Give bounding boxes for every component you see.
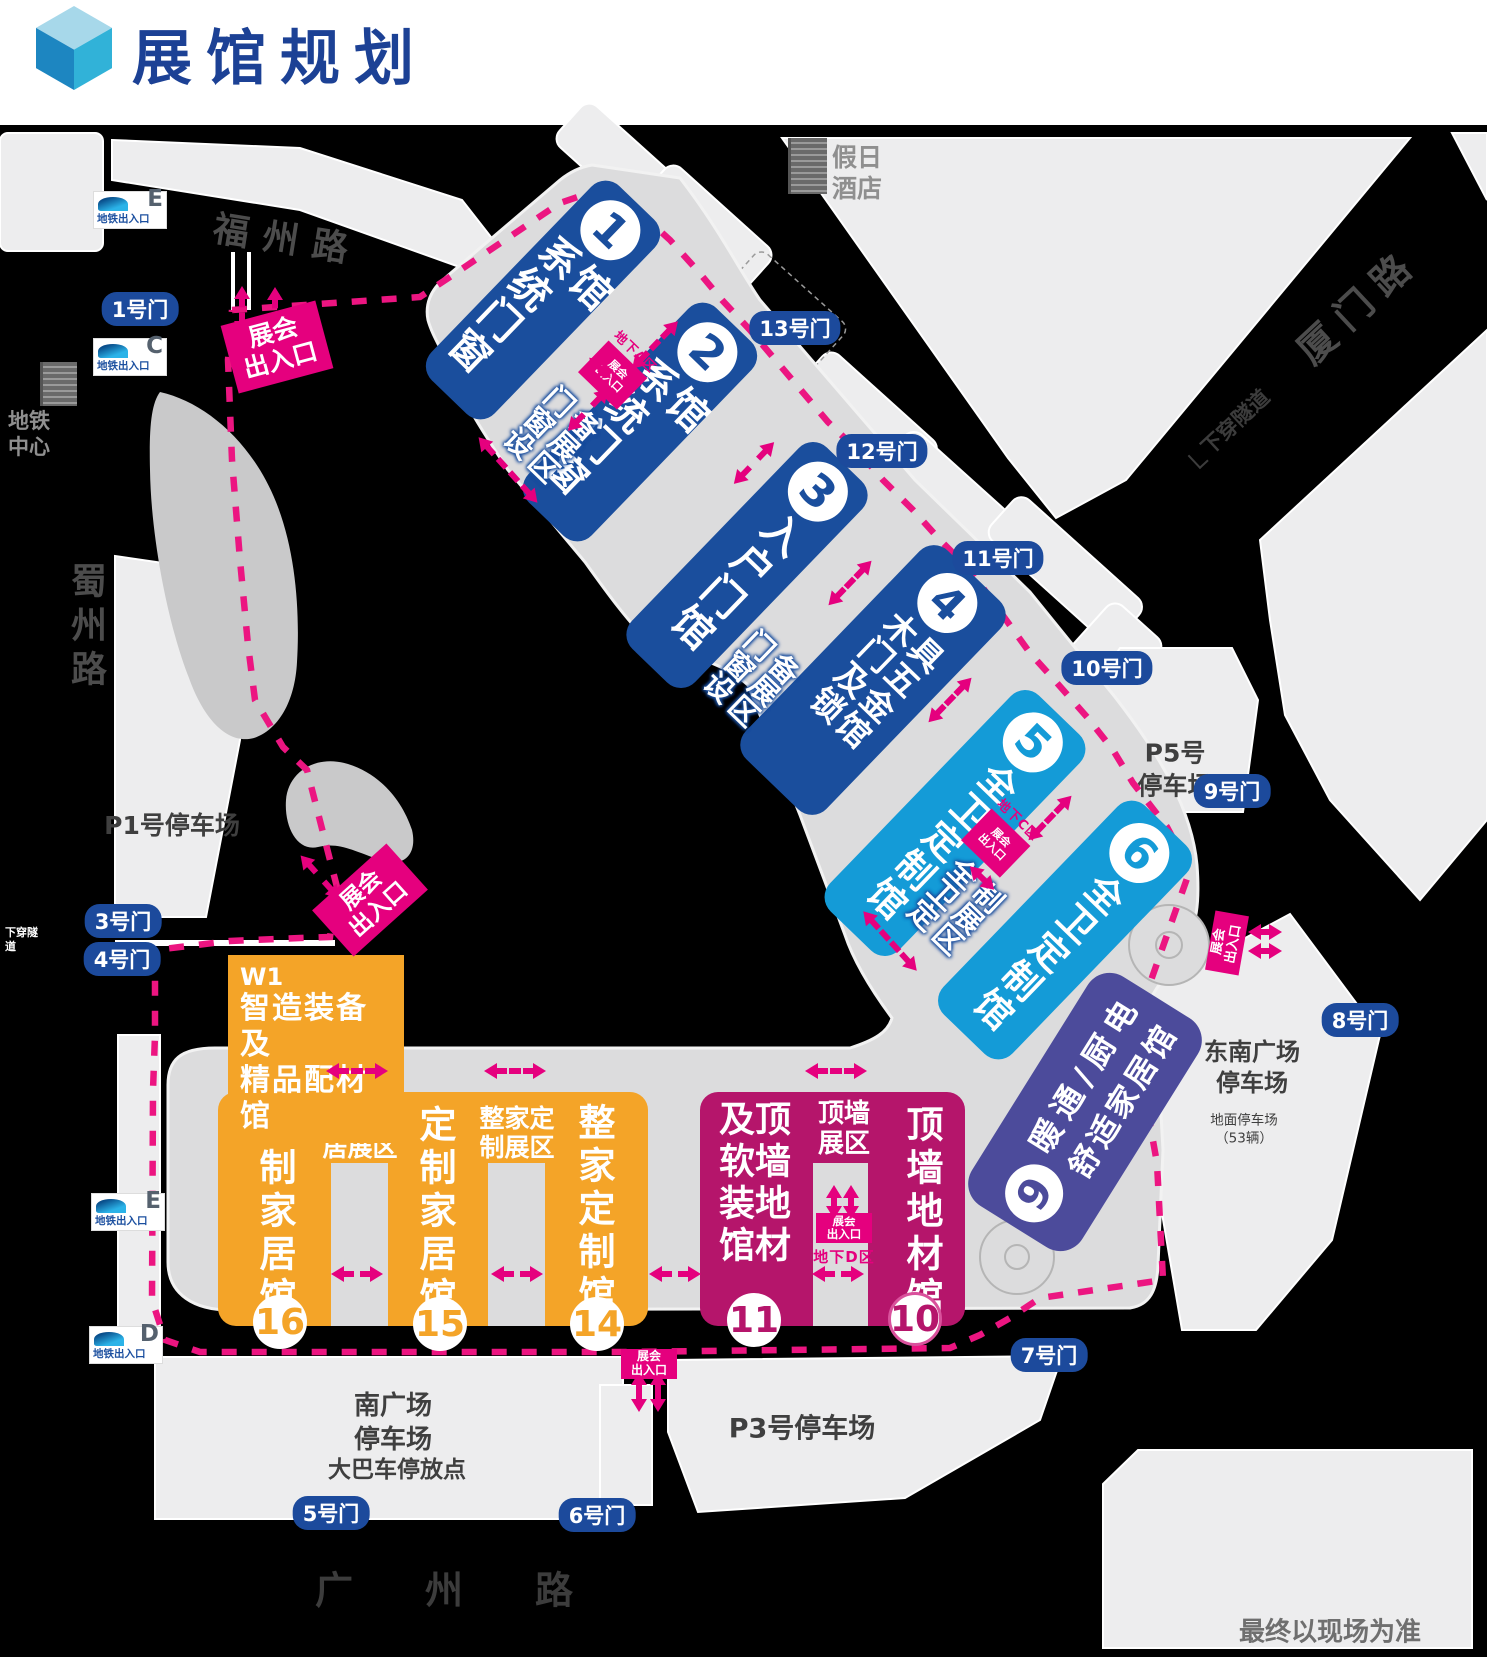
- metro-exit-E: E地铁出入口: [92, 1194, 164, 1230]
- hotel-label: 假日酒店: [832, 142, 882, 205]
- metro-exit-label: 地铁出入口: [95, 1213, 148, 1228]
- metro-wave-icon: [96, 1199, 126, 1213]
- hall-14-name: 整家定制馆: [575, 1103, 612, 1318]
- hotel-building-icon: [788, 138, 827, 194]
- gate-7号门: 7号门: [1011, 1338, 1088, 1372]
- flow-arrow: [1248, 924, 1282, 940]
- hall-14-number: 14: [570, 1297, 624, 1351]
- parking-p1: P1号停车场: [104, 810, 240, 843]
- hall-10-name: 顶墙地材馆: [903, 1105, 940, 1320]
- parking-se-plaza: 东南广场停车场: [1204, 1037, 1300, 1099]
- underground-d-entrance: 展会出入口 地下D区: [812, 1211, 876, 1267]
- metro-center-building-icon: [40, 362, 77, 406]
- metro-exit-E: E地铁出入口: [94, 192, 166, 228]
- inset-16-15: [331, 1163, 388, 1326]
- hall-11-number: 11: [727, 1293, 781, 1347]
- parking-p3: P3号停车场: [729, 1411, 876, 1446]
- parking-ground-53: 地面停车场（53辆）: [1210, 1112, 1278, 1147]
- gate-11号门: 11号门: [952, 541, 1043, 575]
- metro-exit-label: 地铁出入口: [97, 358, 150, 373]
- exhibition-entrance-box: 展会出入口: [621, 1349, 677, 1379]
- metro-wave-icon: [98, 344, 128, 358]
- metro-exit-label: 地铁出入口: [93, 1346, 146, 1361]
- inset-15-14: [488, 1163, 545, 1326]
- exhibition-map: 展馆规划 福州路 蜀州路 厦门路 广州路 下穿隧道 下穿隧道 假日酒店 地铁中心…: [0, 0, 1487, 1657]
- metro-exit-C: C地铁出入口: [94, 339, 166, 375]
- hall-15-name: 定制家居馆: [416, 1105, 453, 1320]
- page-title: 展馆规划: [132, 10, 428, 97]
- metro-exit-letter: E: [147, 186, 163, 212]
- gate-4号门: 4号门: [84, 942, 161, 976]
- zone-label-whole-home: 整家定制展区: [479, 1105, 555, 1163]
- flow-arrow: [826, 1185, 842, 1219]
- gate-8号门: 8号门: [1322, 1003, 1399, 1037]
- flow-arrow: [326, 1063, 388, 1079]
- metro-wave-icon: [98, 197, 128, 211]
- flow-arrow: [649, 1266, 701, 1282]
- gate-10号门: 10号门: [1061, 651, 1152, 685]
- gate-5号门: 5号门: [293, 1496, 370, 1530]
- gate-9号门: 9号门: [1194, 774, 1271, 808]
- hall-11-name: 顶墙地材及软装馆: [715, 1100, 787, 1272]
- disclaimer-note: 最终以现场为准: [1239, 1612, 1421, 1649]
- metro-wave-icon: [94, 1332, 124, 1346]
- parking-south-plaza: 南广场停车场: [354, 1390, 432, 1458]
- logo-cube-icon: [36, 6, 112, 90]
- tunnel-left-label: 下穿隧道: [5, 926, 41, 955]
- road-shuzhou: 蜀州路: [59, 562, 111, 694]
- hall-15-number: 15: [413, 1297, 467, 1351]
- gate-1号门: 1号门: [102, 292, 179, 326]
- gate-3号门: 3号门: [85, 904, 162, 938]
- metro-exit-letter: C: [146, 333, 163, 359]
- gate-6号门: 6号门: [559, 1498, 636, 1532]
- flow-arrow: [491, 1266, 543, 1282]
- hall-16-number: 16: [253, 1295, 307, 1349]
- flow-arrow: [812, 1266, 864, 1282]
- flow-arrow: [484, 1063, 546, 1079]
- hall-w1: W1 智造装备及 精品配材馆: [228, 955, 404, 1143]
- road-guangzhou: 广州路: [315, 1560, 645, 1615]
- flow-arrow: [331, 1266, 383, 1282]
- flow-arrow: [805, 1063, 867, 1079]
- metro-exit-label: 地铁出入口: [97, 211, 150, 226]
- bus-parking-label: 大巴车停放点: [328, 1456, 466, 1486]
- metro-exit-letter: E: [145, 1188, 161, 1214]
- gate-12号门: 12号门: [836, 434, 927, 468]
- gate-13号门: 13号门: [749, 311, 840, 345]
- zone-label-ceiling-wall: 顶墙展区: [812, 1100, 876, 1160]
- metro-center-label: 地铁中心: [8, 408, 50, 461]
- hall-10-number: 10: [888, 1292, 942, 1346]
- metro-exit-D: D地铁出入口: [90, 1327, 162, 1363]
- flow-arrow: [1248, 943, 1282, 959]
- flow-arrow: [843, 1185, 859, 1219]
- metro-exit-letter: D: [140, 1321, 159, 1347]
